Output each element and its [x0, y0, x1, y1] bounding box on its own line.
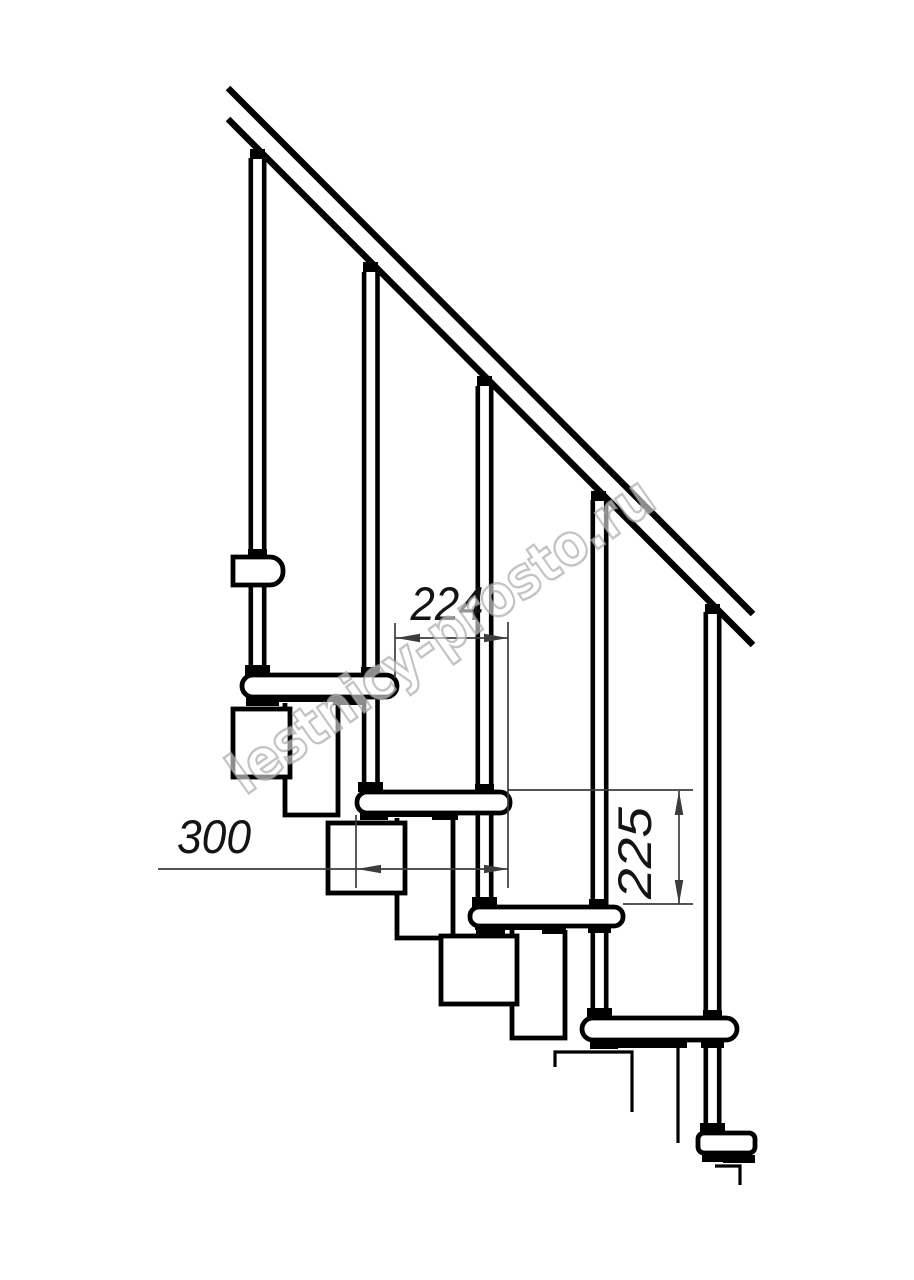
watermark-text: lestnicy-prosto.ru: [215, 464, 667, 808]
dimension-label-tread-depth: 300: [177, 810, 251, 863]
drawing-page: 224 300 225 lestnicy-prosto.ru: [0, 0, 914, 1280]
staircase-drawing: 224 300 225 lestnicy-prosto.ru: [0, 0, 914, 1280]
module-spine: [233, 703, 740, 1185]
connector-plates: [245, 149, 755, 1163]
dimension-label-riser-height: 225: [608, 806, 661, 900]
